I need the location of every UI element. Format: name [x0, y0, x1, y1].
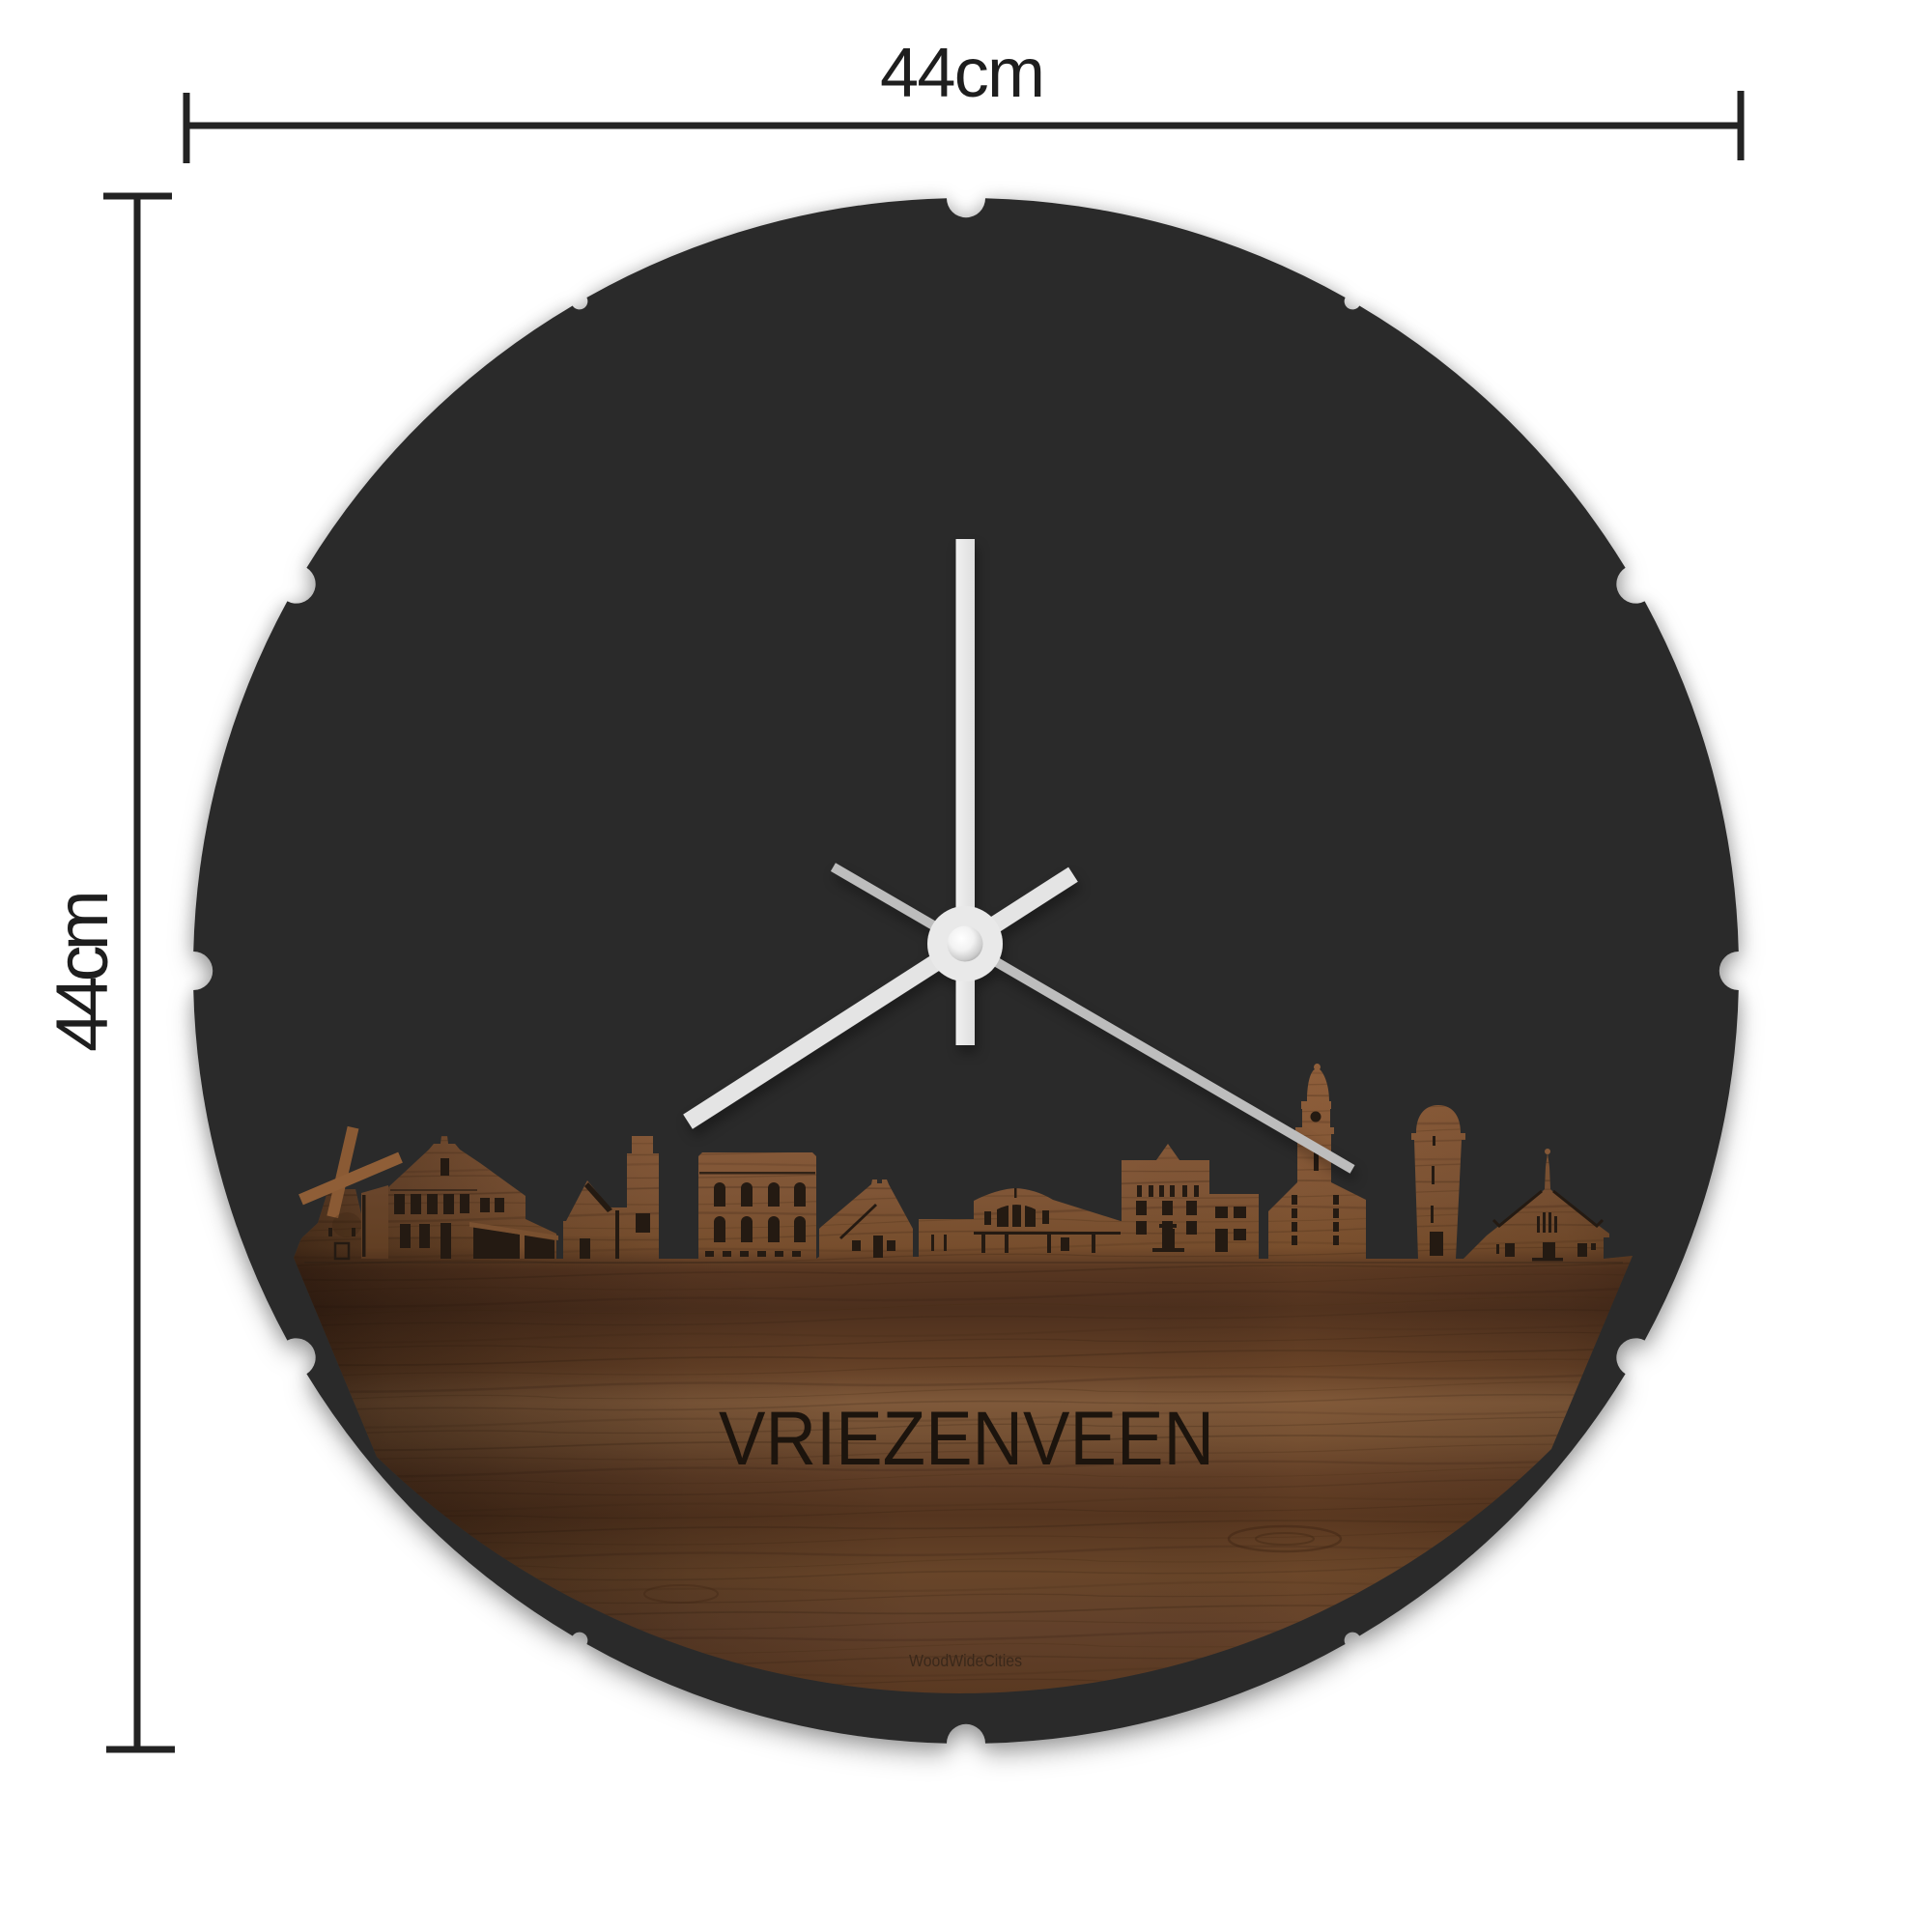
svg-text:WoodWideCities: WoodWideCities	[909, 1651, 1022, 1670]
svg-text:44cm: 44cm	[42, 890, 124, 1052]
svg-text:44cm: 44cm	[880, 35, 1045, 112]
svg-text:VRIEZENVEEN: VRIEZENVEEN	[719, 1395, 1214, 1481]
